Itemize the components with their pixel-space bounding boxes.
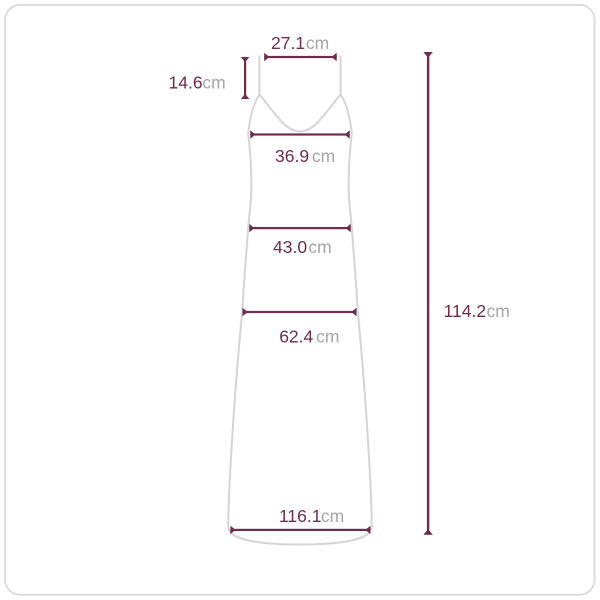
svg-text:114.2 cm: 114.2 cm [444,301,510,321]
svg-text:14.6 cm: 14.6 cm [169,73,226,93]
svg-text:36.9 cm: 36.9 cm [275,146,335,166]
svg-text:116.1 cm: 116.1 cm [279,506,344,526]
svg-text:27.1 cm: 27.1 cm [271,33,329,53]
svg-text:43.0 cm: 43.0 cm [273,237,332,257]
svg-text:62.4 cm: 62.4 cm [279,326,339,346]
